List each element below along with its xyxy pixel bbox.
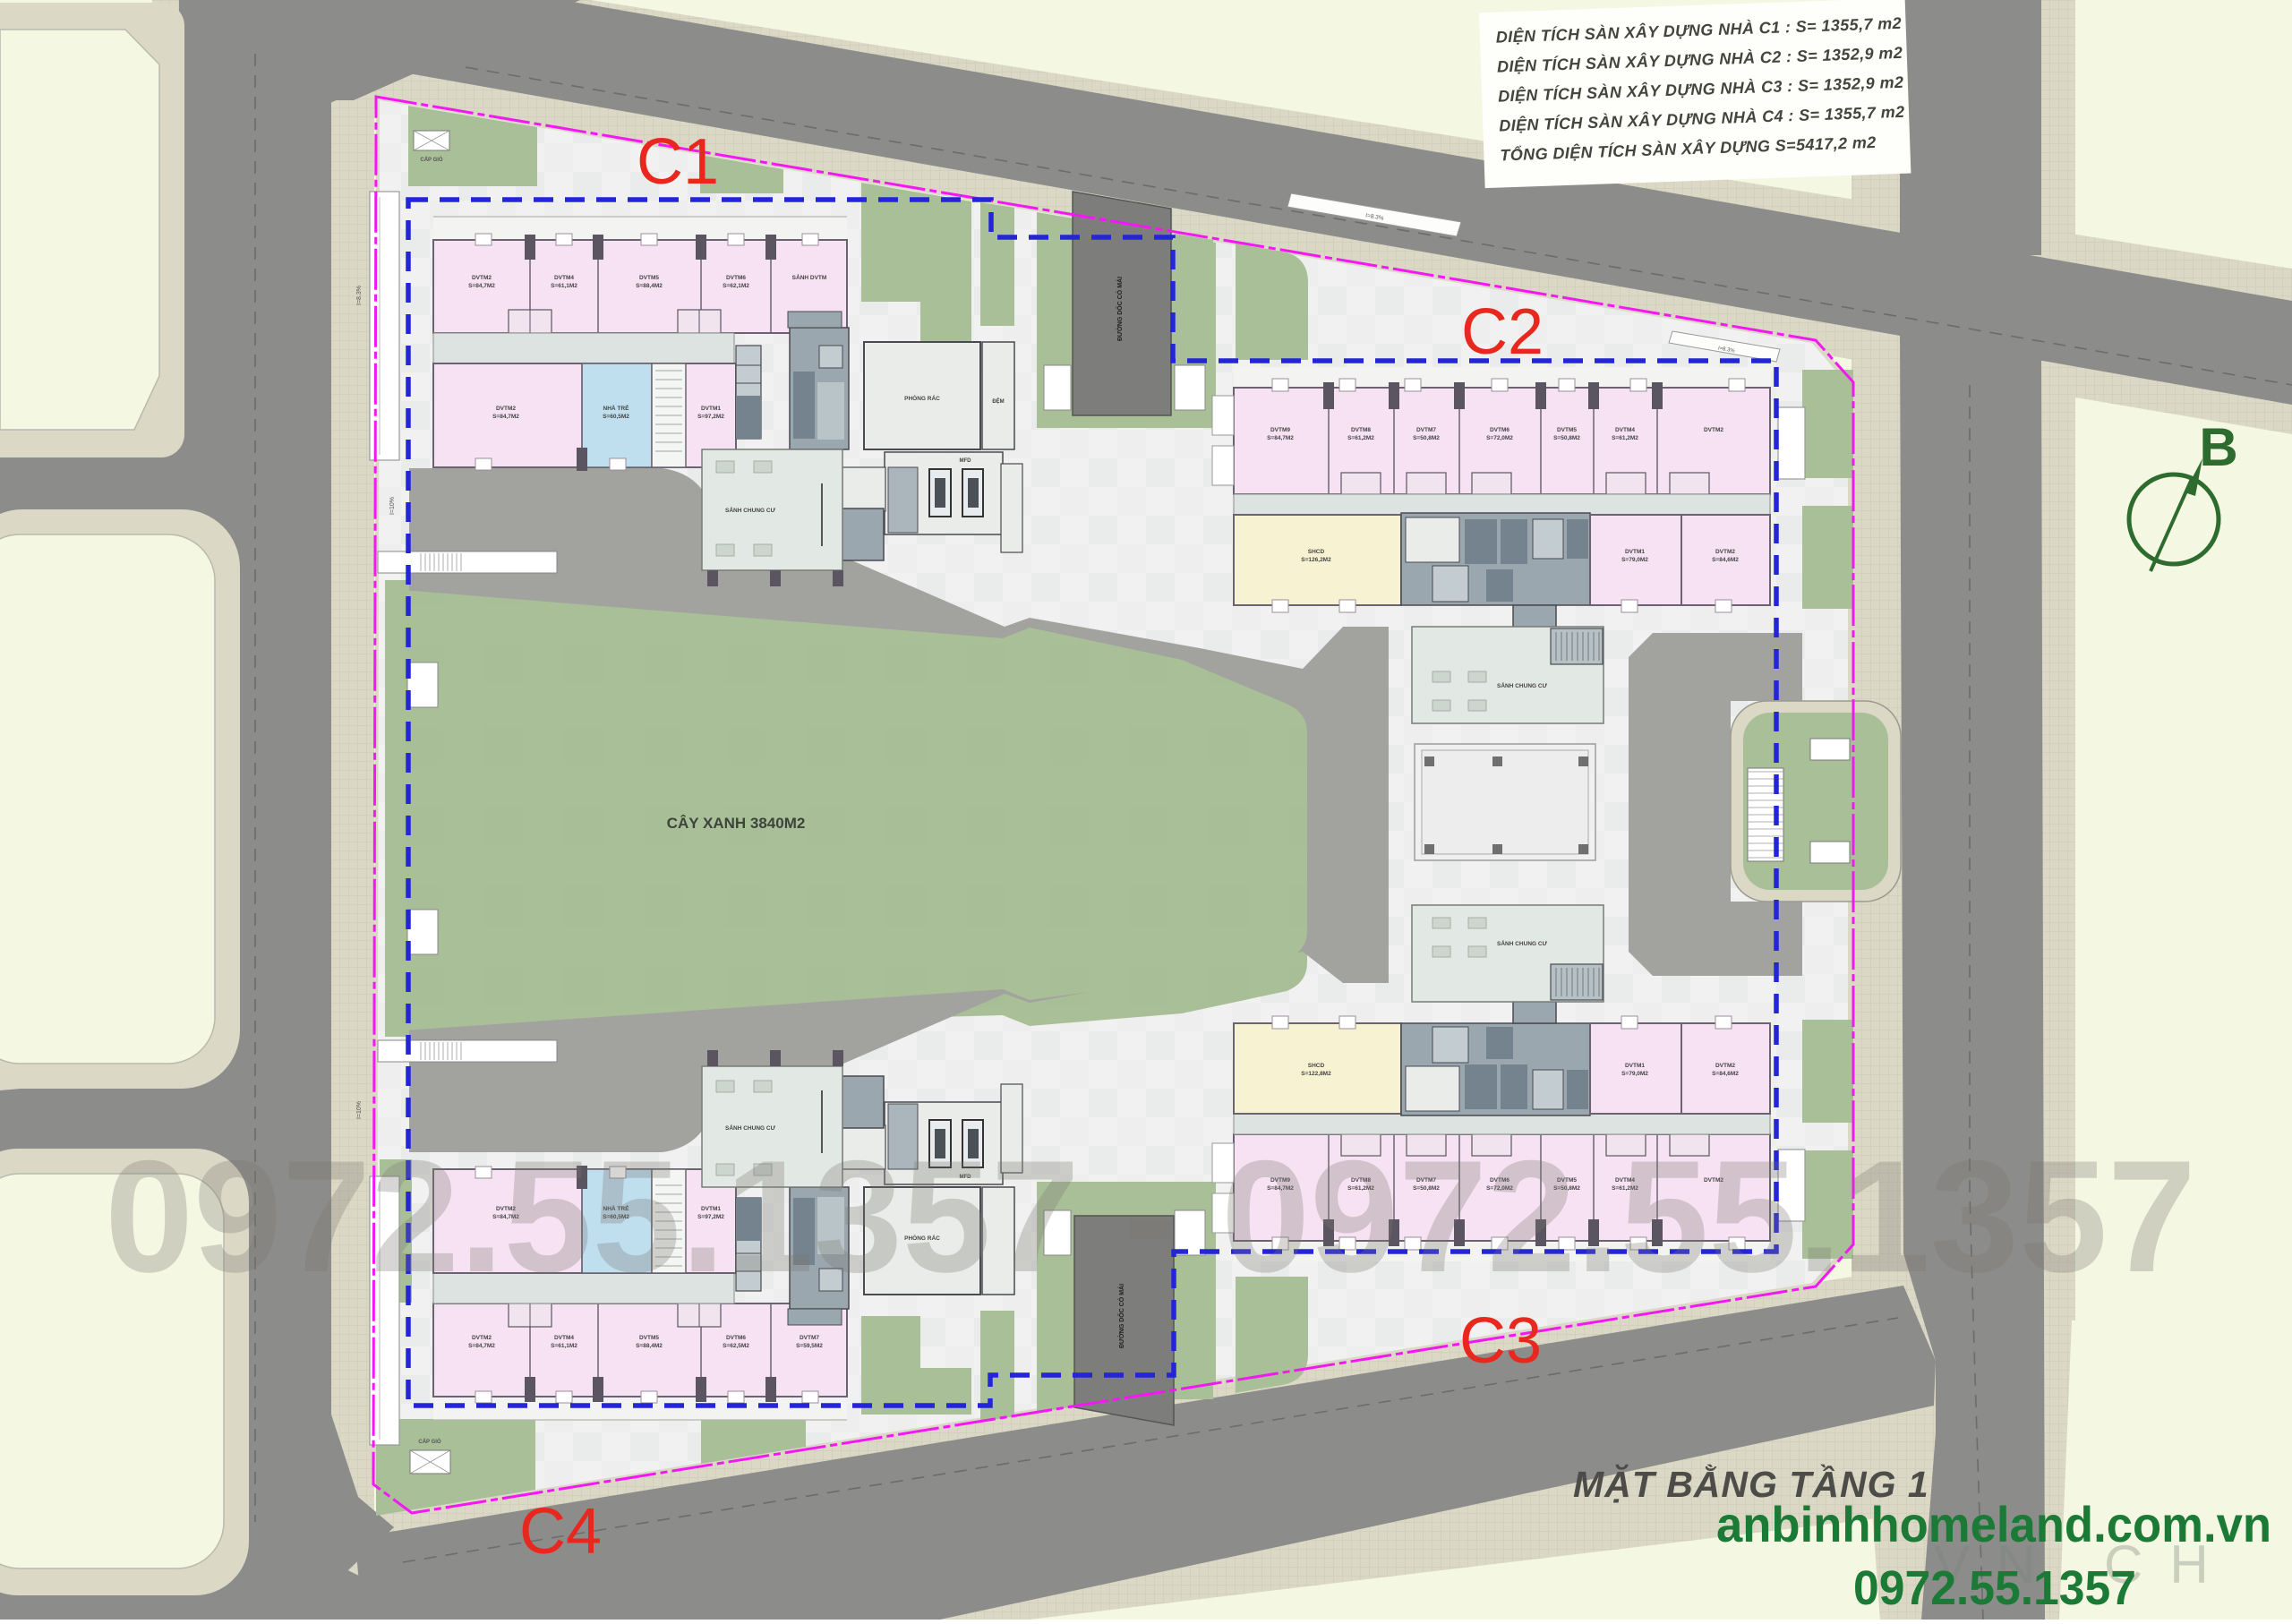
svg-text:I=10%: I=10% <box>356 1101 363 1119</box>
svg-text:DVTM5: DVTM5 <box>1557 427 1577 433</box>
svg-text:DVTM2: DVTM2 <box>1704 427 1723 433</box>
svg-text:S=84,7M2: S=84,7M2 <box>1267 435 1294 441</box>
svg-text:DVTM7: DVTM7 <box>1416 427 1436 433</box>
svg-text:0972.55.1357 - 0972.55.1357: 0972.55.1357 - 0972.55.1357 <box>105 1127 2196 1305</box>
svg-text:S=61,1M2: S=61,1M2 <box>551 1343 577 1349</box>
svg-text:S=72,0M2: S=72,0M2 <box>1486 435 1513 441</box>
svg-text:MFD: MFD <box>960 458 972 464</box>
svg-text:S=61,1M2: S=61,1M2 <box>551 283 577 289</box>
svg-text:DVTM5: DVTM5 <box>639 275 659 281</box>
svg-text:DVTM2: DVTM2 <box>1715 1063 1735 1069</box>
svg-text:CẤP GIÓ: CẤP GIÓ <box>420 156 443 163</box>
svg-text:I=10%: I=10% <box>389 497 396 515</box>
svg-text:C2: C2 <box>1461 296 1544 368</box>
svg-text:anbinhhomeland.com.vn: anbinhhomeland.com.vn <box>1716 1496 2271 1552</box>
svg-text:S=84,7M2: S=84,7M2 <box>468 283 495 289</box>
svg-text:S=62,1M2: S=62,1M2 <box>723 283 749 289</box>
svg-text:DVTM1: DVTM1 <box>701 406 721 412</box>
svg-text:DVTM6: DVTM6 <box>726 275 746 281</box>
svg-text:0972.55.1357: 0972.55.1357 <box>1853 1561 2136 1615</box>
svg-text:S=62,5M2: S=62,5M2 <box>723 1343 749 1349</box>
svg-text:DVTM5: DVTM5 <box>639 1335 659 1341</box>
svg-text:DVTM6: DVTM6 <box>726 1335 746 1341</box>
svg-text:PHÒNG RÁC: PHÒNG RÁC <box>904 394 940 402</box>
svg-text:SẢNH CHUNG CƯ: SẢNH CHUNG CƯ <box>725 506 776 514</box>
svg-text:S=79,0M2: S=79,0M2 <box>1621 1071 1648 1077</box>
svg-text:SẢNH CHUNG CƯ: SẢNH CHUNG CƯ <box>1497 681 1548 689</box>
svg-text:C1: C1 <box>637 126 719 198</box>
svg-text:SẢNH CHUNG CƯ: SẢNH CHUNG CƯ <box>1497 939 1548 947</box>
svg-text:S=84,7M2: S=84,7M2 <box>468 1343 495 1349</box>
svg-text:DVTM2: DVTM2 <box>1715 549 1735 555</box>
svg-text:S=84,7M2: S=84,7M2 <box>492 414 519 420</box>
svg-text:S=50,8M2: S=50,8M2 <box>1553 435 1580 441</box>
svg-text:DVTM2: DVTM2 <box>472 1335 492 1341</box>
svg-text:ĐỆM: ĐỆM <box>992 397 1004 405</box>
svg-text:S=60,5M2: S=60,5M2 <box>603 414 629 420</box>
svg-text:B: B <box>2199 417 2237 477</box>
svg-text:S=79,0M2: S=79,0M2 <box>1621 557 1648 563</box>
svg-text:S=122,8M2: S=122,8M2 <box>1301 1071 1331 1077</box>
svg-text:SẢNH DVTM: SẢNH DVTM <box>792 273 827 281</box>
svg-text:DVTM2: DVTM2 <box>496 406 516 412</box>
svg-text:DVTM2: DVTM2 <box>472 275 492 281</box>
svg-text:C4: C4 <box>519 1496 602 1568</box>
svg-text:SHCD: SHCD <box>1308 1063 1325 1069</box>
svg-text:DVTM4: DVTM4 <box>554 1335 574 1341</box>
svg-text:S=84,6M2: S=84,6M2 <box>1712 557 1739 563</box>
svg-text:DVTM1: DVTM1 <box>1625 549 1645 555</box>
svg-text:S=50,8M2: S=50,8M2 <box>1413 435 1440 441</box>
svg-text:DVTM7: DVTM7 <box>800 1335 819 1341</box>
svg-text:S=126,2M2: S=126,2M2 <box>1301 557 1331 563</box>
svg-text:CẤP GIÓ: CẤP GIÓ <box>418 1438 441 1445</box>
svg-text:SHCD: SHCD <box>1308 549 1325 555</box>
svg-text:DVTM9: DVTM9 <box>1270 427 1290 433</box>
svg-text:CÂY XANH 3840M2: CÂY XANH 3840M2 <box>667 815 806 832</box>
svg-text:DVTM4: DVTM4 <box>1615 427 1635 433</box>
svg-text:S=97,2M2: S=97,2M2 <box>697 414 724 420</box>
svg-text:S=88,4M2: S=88,4M2 <box>636 1343 663 1349</box>
svg-text:NHÀ TRẺ: NHÀ TRẺ <box>603 404 630 412</box>
svg-text:DVTM1: DVTM1 <box>1625 1063 1645 1069</box>
svg-text:C3: C3 <box>1459 1305 1542 1377</box>
svg-text:S=59,5M2: S=59,5M2 <box>796 1343 823 1349</box>
svg-text:I=8.3%: I=8.3% <box>356 286 363 305</box>
svg-text:DVTM6: DVTM6 <box>1490 427 1509 433</box>
svg-text:S=61,2M2: S=61,2M2 <box>1347 435 1374 441</box>
svg-text:DVTM4: DVTM4 <box>554 275 574 281</box>
svg-text:DVTM8: DVTM8 <box>1351 427 1371 433</box>
svg-text:S=61,2M2: S=61,2M2 <box>1612 435 1638 441</box>
svg-text:S=84,6M2: S=84,6M2 <box>1712 1071 1739 1077</box>
svg-text:S=88,4M2: S=88,4M2 <box>636 283 663 289</box>
